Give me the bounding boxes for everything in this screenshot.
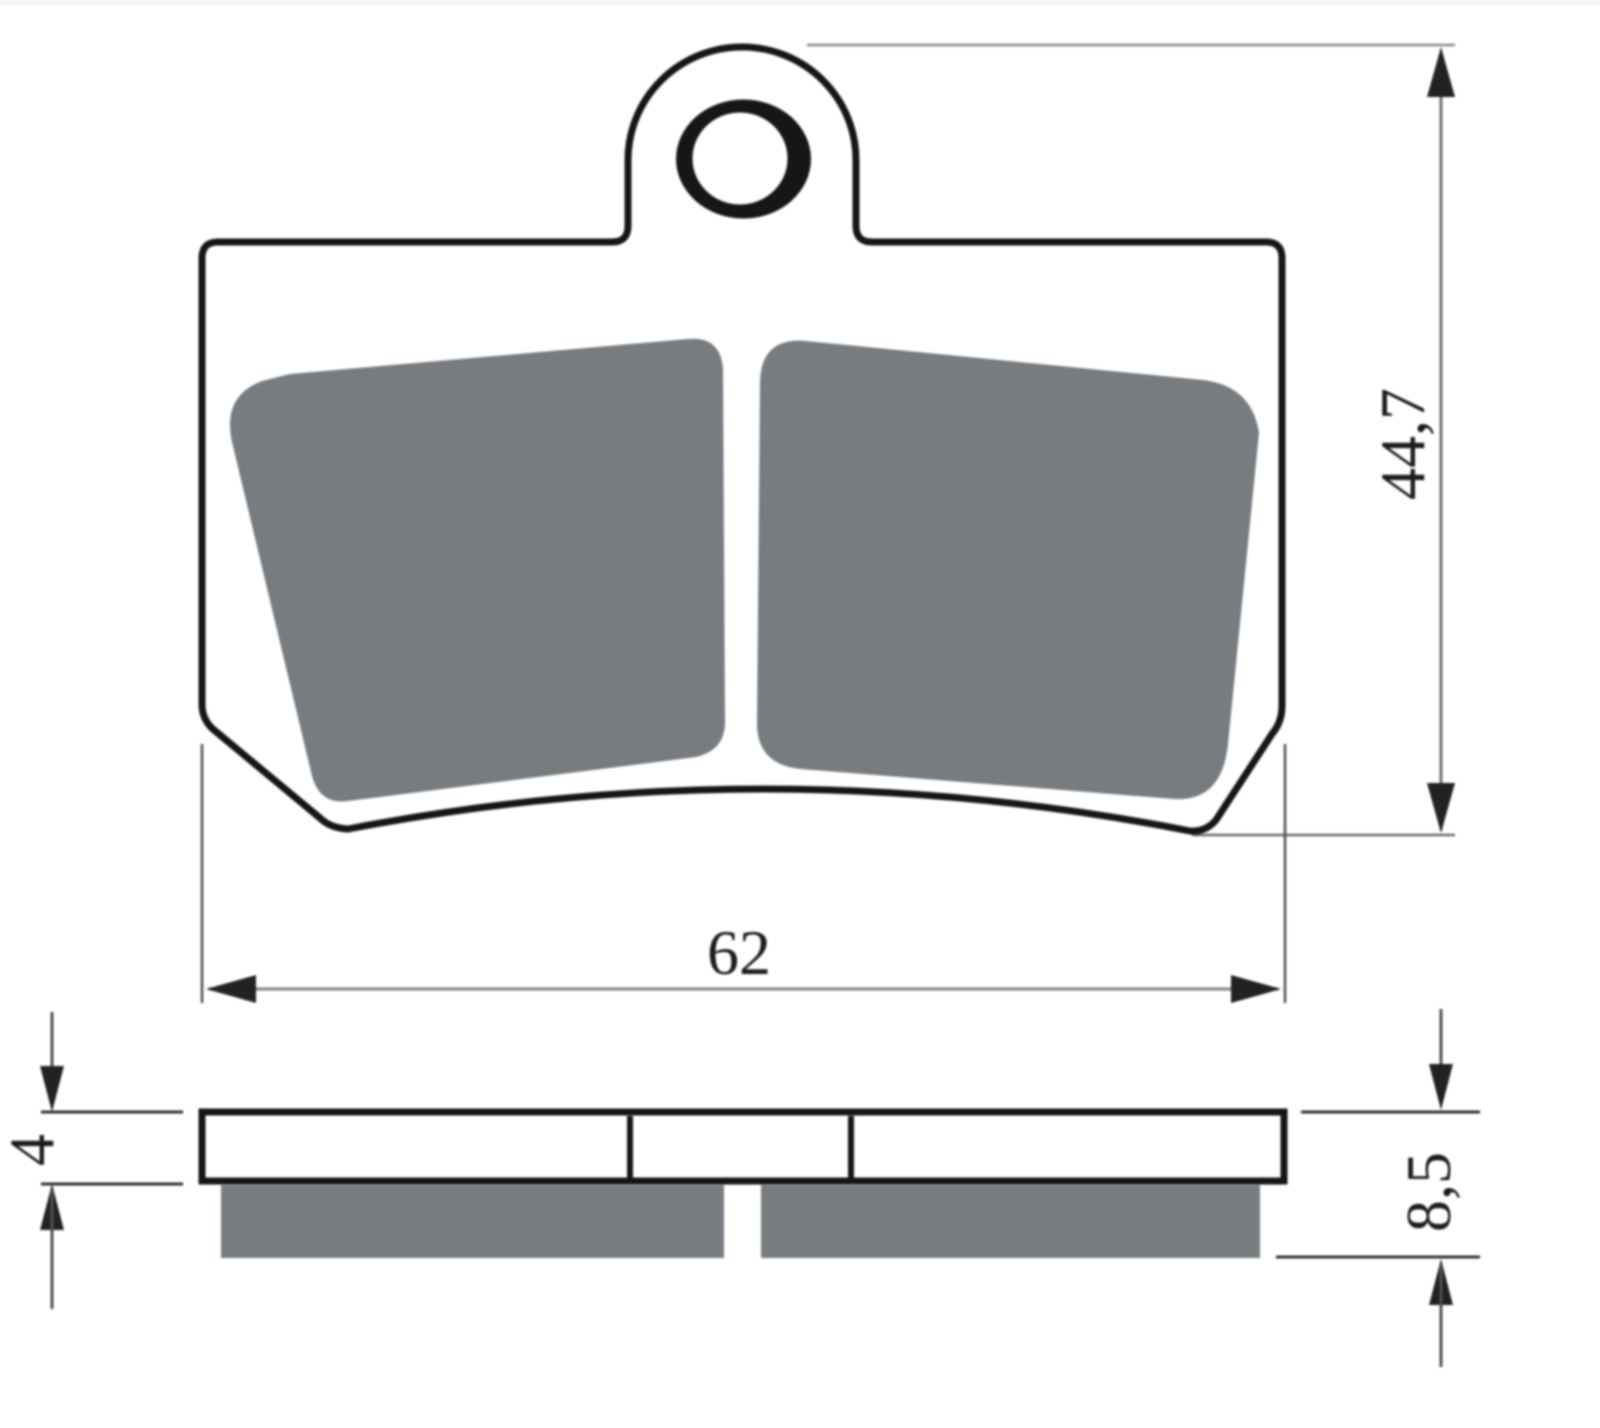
svg-text:8,5: 8,5	[1393, 1152, 1464, 1232]
svg-text:62: 62	[707, 917, 771, 988]
svg-text:44,7: 44,7	[1367, 388, 1438, 500]
svg-text:4: 4	[0, 1134, 67, 1166]
